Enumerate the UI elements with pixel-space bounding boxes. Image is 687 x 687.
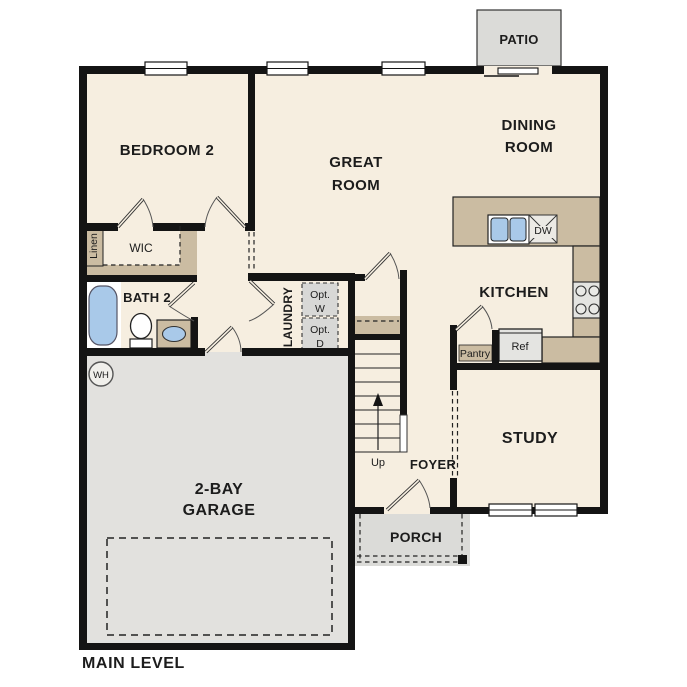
opt-washer-label-2: W (315, 303, 325, 315)
floorplan-svg: PATIO BEDROOM 2 GREAT ROOM DINING ROOM K… (0, 0, 687, 687)
wall-pantry-left (450, 325, 457, 363)
window-bedroom (145, 62, 187, 75)
refrigerator-label: Ref (511, 341, 529, 353)
stairs-up-label: Up (371, 457, 385, 469)
porch-label: PORCH (390, 529, 442, 545)
garage-label-1: 2-BAY (195, 481, 244, 498)
plan-title: MAIN LEVEL (82, 655, 185, 672)
floorplan-image: PATIO BEDROOM 2 GREAT ROOM DINING ROOM K… (0, 0, 687, 687)
wall-garage-top-b (242, 348, 355, 356)
sink-basin-right (510, 218, 526, 241)
stove-icon (573, 282, 600, 318)
linen-label: Linen (88, 233, 100, 259)
wall-study-stub-top (450, 370, 457, 390)
closet-shelf (355, 316, 400, 334)
wall-garage-bottom (79, 643, 355, 650)
patio-label: PATIO (499, 32, 538, 47)
opt-dryer-label-1: Opt. (310, 324, 330, 336)
wall-top-right (552, 66, 608, 74)
porch-post (458, 555, 467, 564)
wall-center-vertical (348, 273, 355, 650)
stair-passage (400, 415, 407, 452)
wall-left (79, 66, 87, 650)
wall-closet-stub (348, 274, 365, 281)
wall-bedroom-right (248, 66, 255, 230)
wall-right (600, 66, 608, 514)
dining-label-1: DINING (502, 117, 557, 134)
opt-dryer-label-2: D (316, 338, 324, 350)
greatroom-label-2: ROOM (332, 177, 380, 194)
dining-label-2: ROOM (505, 139, 553, 156)
wall-laundry-top (248, 273, 355, 281)
kitchen-label: KITCHEN (479, 284, 548, 301)
toilet-bowl-icon (131, 314, 152, 339)
wall-study-stub-bottom (450, 478, 457, 507)
dishwasher-label: DW (534, 225, 552, 237)
wall-bedroom-bottom-a (79, 223, 118, 231)
sink-basin-left (491, 218, 508, 241)
kitchen-bottom-counter (542, 337, 600, 363)
bath2-label: BATH 2 (123, 290, 171, 305)
wall-study-top (450, 363, 608, 370)
laundry-label: LAUNDRY (281, 287, 295, 347)
window-study-1 (489, 504, 532, 516)
wall-garage-top-a (79, 348, 205, 356)
opt-washer-label-1: Opt. (310, 289, 330, 301)
wall-closet-divider (355, 334, 400, 340)
window-greatroom-2 (382, 62, 425, 75)
garage-floor (83, 352, 352, 645)
wall-wic-bottom (79, 275, 197, 282)
wall-pantry-right (492, 330, 499, 363)
window-study-2 (535, 504, 577, 516)
garage-label-2: GARAGE (183, 502, 256, 519)
window-greatroom-1 (267, 62, 308, 75)
bathtub-icon (89, 286, 117, 345)
greatroom-label-1: GREAT (329, 154, 382, 171)
water-heater-label: WH (93, 370, 109, 381)
wall-bath-right (191, 317, 198, 352)
wic-label: WIC (129, 241, 153, 255)
foyer-label: FOYER (410, 457, 457, 472)
bedroom2-label: BEDROOM 2 (120, 142, 214, 159)
study-label: STUDY (502, 430, 558, 447)
bath-sink-icon (163, 327, 186, 342)
toilet-tank-icon (130, 339, 152, 348)
pantry-label: Pantry (460, 348, 491, 360)
wall-bedroom-bottom-b (153, 223, 205, 231)
